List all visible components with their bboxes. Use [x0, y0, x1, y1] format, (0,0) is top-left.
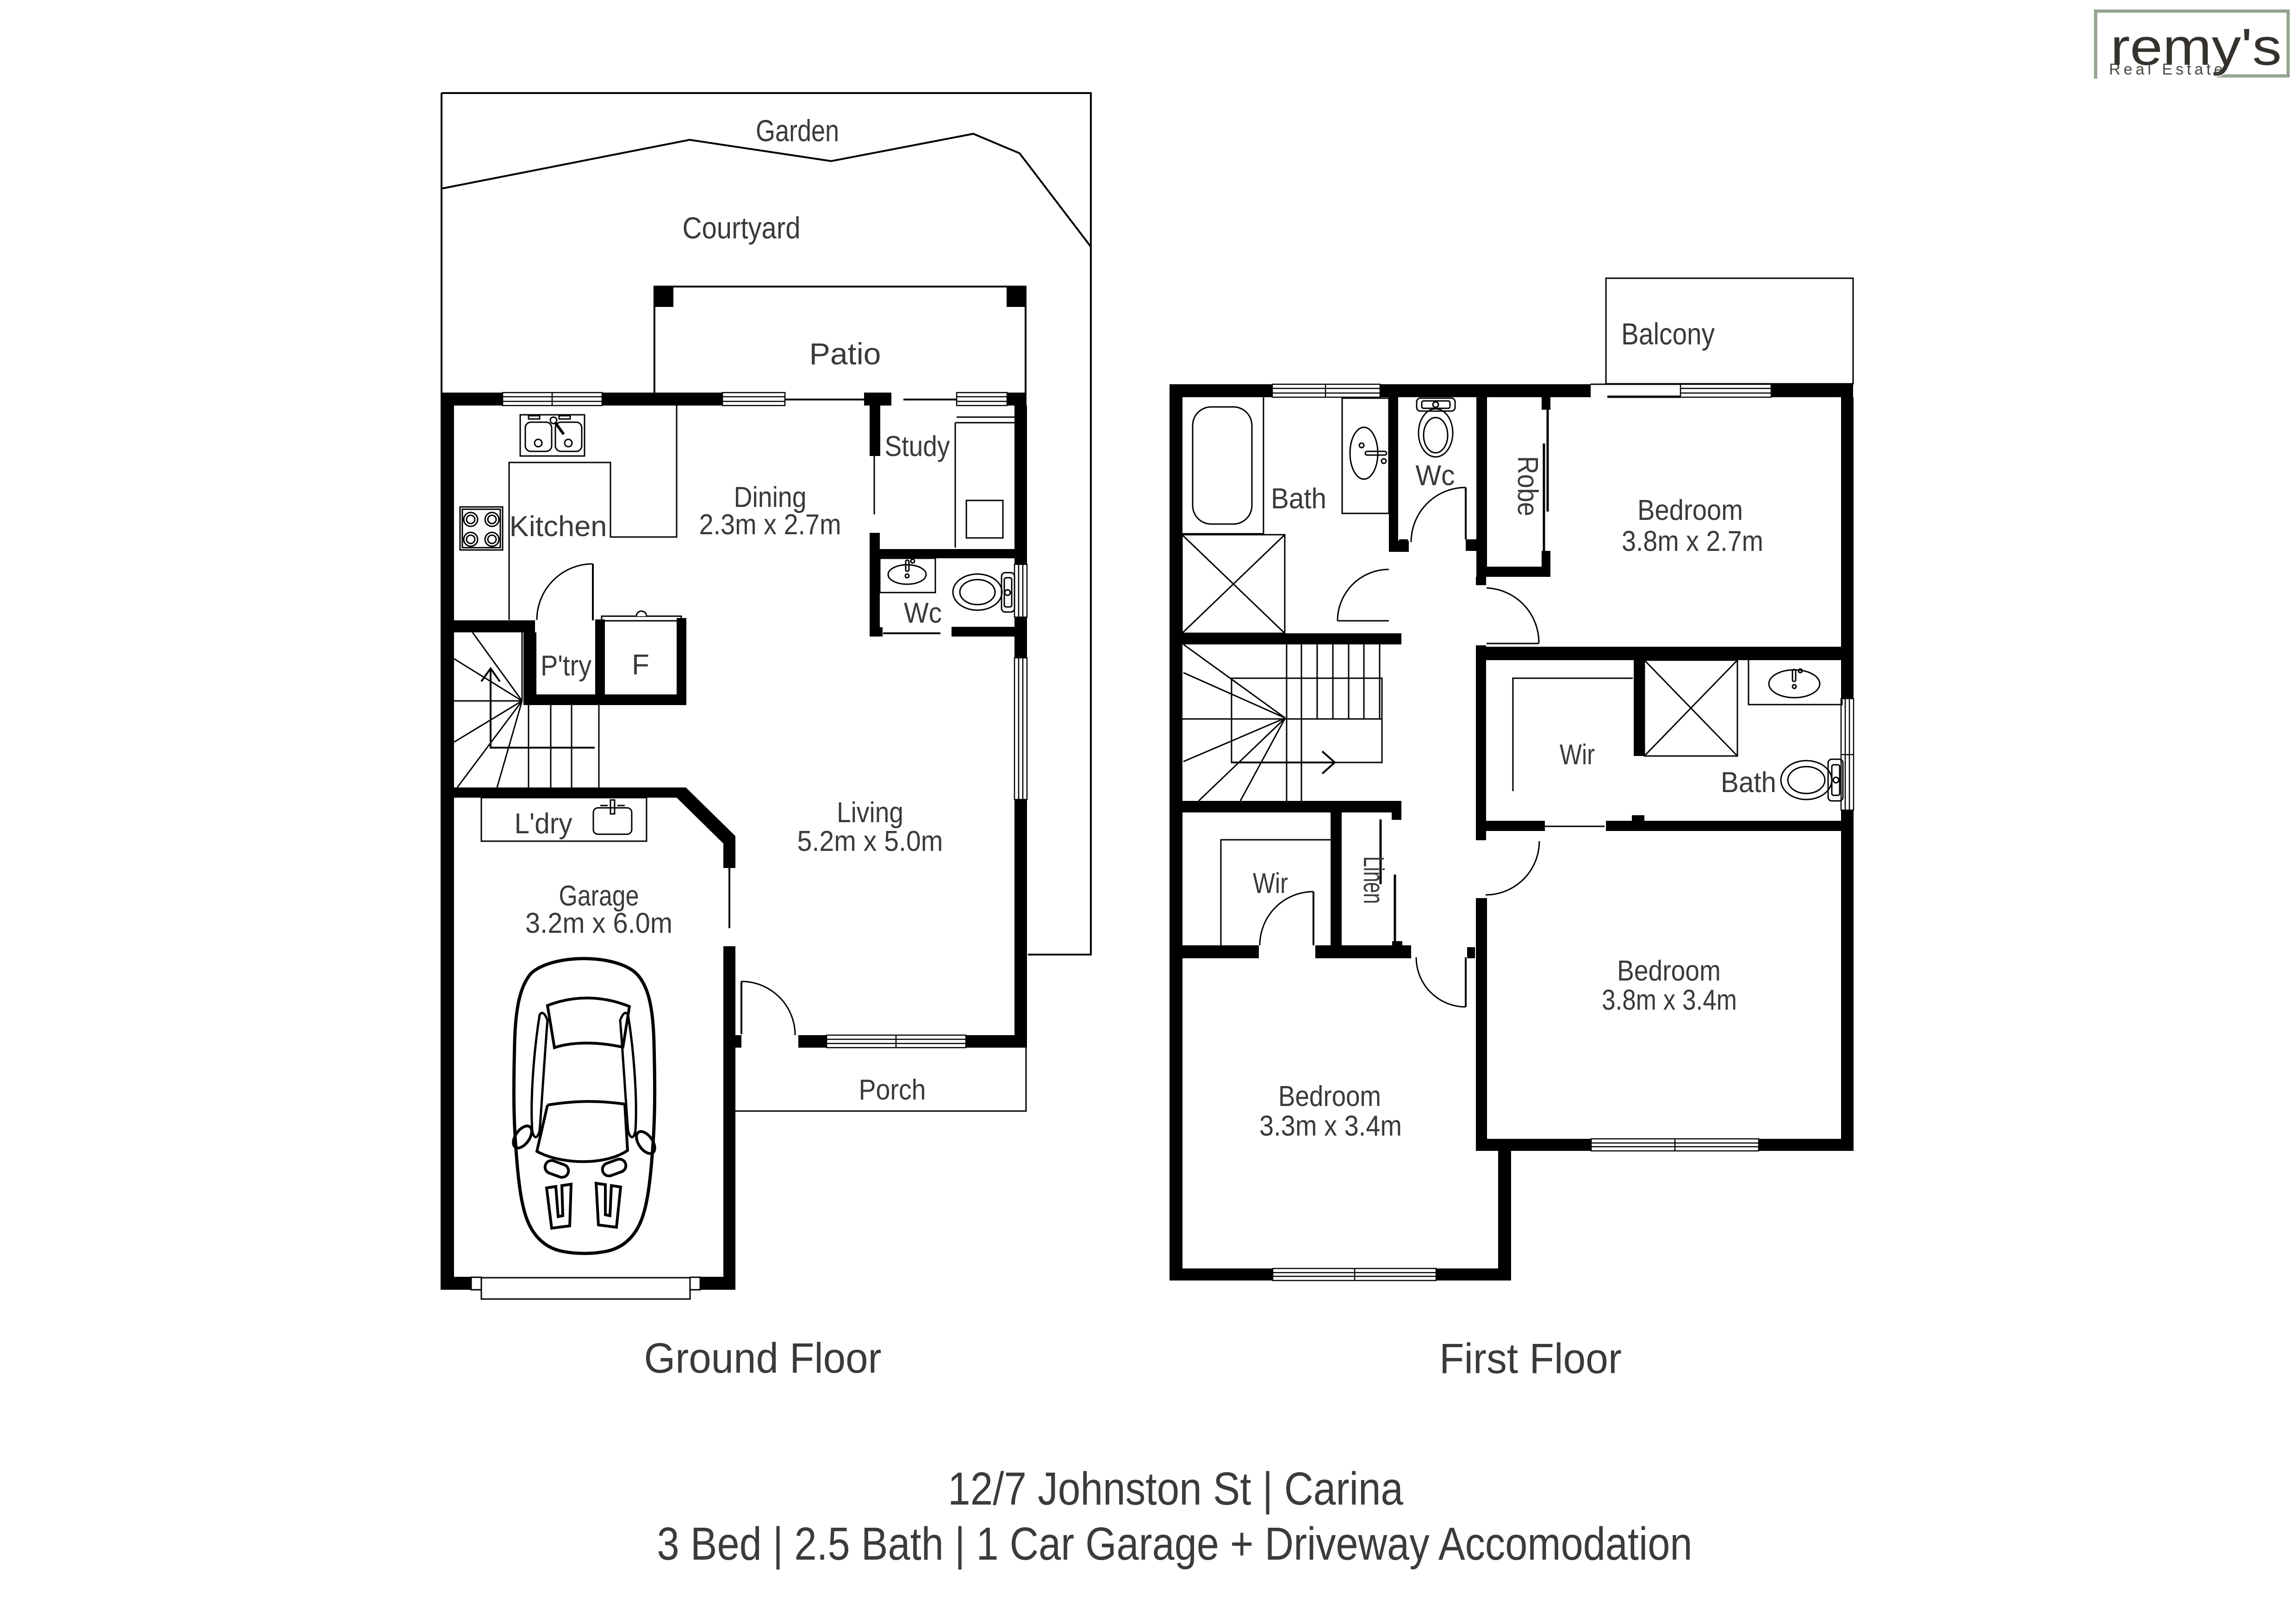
svg-text:3.2m x 6.0m: 3.2m x 6.0m	[525, 907, 672, 939]
svg-text:Wir: Wir	[1253, 868, 1288, 899]
svg-text:Study: Study	[885, 431, 950, 462]
svg-text:12/7 Johnston St | Carina: 12/7 Johnston St | Carina	[948, 1463, 1403, 1515]
svg-text:Balcony: Balcony	[1621, 317, 1715, 351]
svg-text:Porch: Porch	[859, 1074, 926, 1106]
svg-text:3.3m x 3.4m: 3.3m x 3.4m	[1259, 1110, 1402, 1142]
svg-text:L'dry: L'dry	[515, 808, 572, 840]
svg-text:Bedroom: Bedroom	[1278, 1081, 1381, 1112]
svg-text:Bedroom: Bedroom	[1617, 955, 1721, 987]
svg-text:Bedroom: Bedroom	[1637, 494, 1743, 526]
svg-text:Ground Floor: Ground Floor	[644, 1335, 882, 1382]
svg-text:Courtyard: Courtyard	[683, 211, 801, 245]
svg-text:3 Bed | 2.5 Bath | 1 Car Garag: 3 Bed | 2.5 Bath | 1 Car Garage + Drivew…	[657, 1518, 1692, 1570]
svg-text:5.2m x 5.0m: 5.2m x 5.0m	[797, 825, 943, 857]
svg-text:2.3m x 2.7m: 2.3m x 2.7m	[699, 509, 841, 541]
svg-text:Linen: Linen	[1357, 856, 1389, 904]
svg-text:P'try: P'try	[541, 650, 591, 682]
svg-text:Wc: Wc	[904, 597, 942, 629]
svg-text:Bath: Bath	[1721, 767, 1776, 799]
svg-text:F: F	[632, 649, 649, 681]
svg-text:3.8m x 2.7m: 3.8m x 2.7m	[1622, 525, 1763, 557]
svg-text:Kitchen: Kitchen	[510, 511, 607, 543]
svg-text:Garden: Garden	[756, 113, 839, 148]
svg-text:Patio: Patio	[809, 337, 881, 371]
svg-text:Living: Living	[837, 797, 903, 829]
svg-text:Wc: Wc	[1416, 460, 1455, 492]
svg-text:Bath: Bath	[1271, 483, 1326, 515]
svg-text:3.8m x 3.4m: 3.8m x 3.4m	[1602, 984, 1737, 1016]
svg-text:Robe: Robe	[1512, 456, 1543, 516]
svg-text:First Floor: First Floor	[1439, 1335, 1622, 1382]
svg-text:Wir: Wir	[1560, 739, 1595, 771]
svg-text:Real Estate: Real Estate	[2109, 61, 2226, 78]
